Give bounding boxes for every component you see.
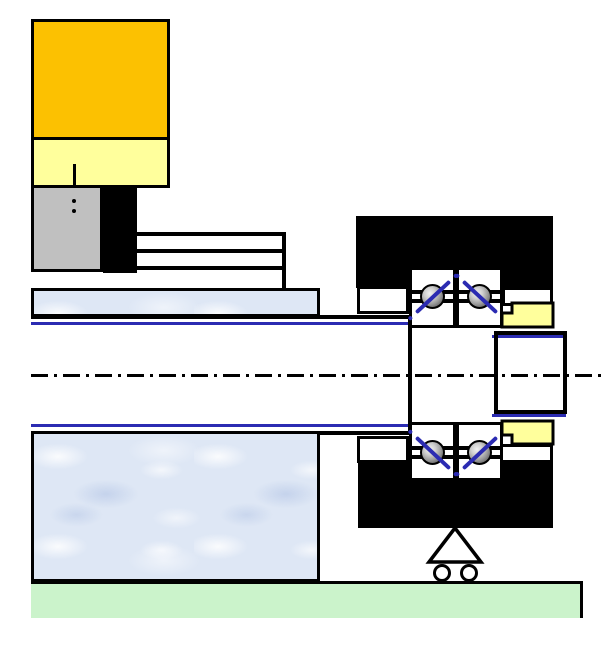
- locknut-bottom: [500, 418, 556, 447]
- plate-line: [137, 266, 286, 270]
- tool-axis-line: [73, 164, 76, 188]
- journal-top-blue-line: [492, 335, 566, 338]
- journal-bottom-line: [495, 410, 566, 414]
- black-column-block: [103, 187, 137, 273]
- shaft-top-surface-line: [31, 322, 408, 325]
- motor-flange-block: [31, 140, 170, 188]
- gray-block: [31, 188, 103, 272]
- plate-line: [137, 249, 286, 253]
- headstock-casting: [31, 434, 320, 582]
- plate-line: [137, 232, 286, 236]
- housing-upper-wall: [31, 288, 320, 317]
- tool-axis-dot: [72, 199, 76, 203]
- plate-right-edge: [282, 232, 286, 291]
- shaft-step-line: [494, 331, 498, 414]
- tool-axis-dot: [72, 209, 76, 213]
- motor-body-block: [31, 19, 170, 140]
- housing-spacer-top-left: [357, 286, 409, 314]
- support-roller-right: [460, 564, 478, 582]
- spacer-plates: [137, 231, 286, 291]
- housing-spacer-bottom-left: [357, 436, 409, 463]
- center-axis-line: [31, 374, 601, 377]
- drawing-canvas: [0, 0, 614, 645]
- shaft-bottom-surface-line: [31, 424, 408, 427]
- journal-bottom-blue-line: [492, 414, 566, 417]
- shaft-bore-top-line: [31, 315, 410, 319]
- journal-top-line: [495, 331, 566, 335]
- shaft-end-face-line: [563, 331, 567, 414]
- locknut-top: [500, 301, 556, 330]
- machine-bed: [31, 581, 583, 618]
- support-triangle: [424, 525, 488, 565]
- support-roller-left: [433, 564, 451, 582]
